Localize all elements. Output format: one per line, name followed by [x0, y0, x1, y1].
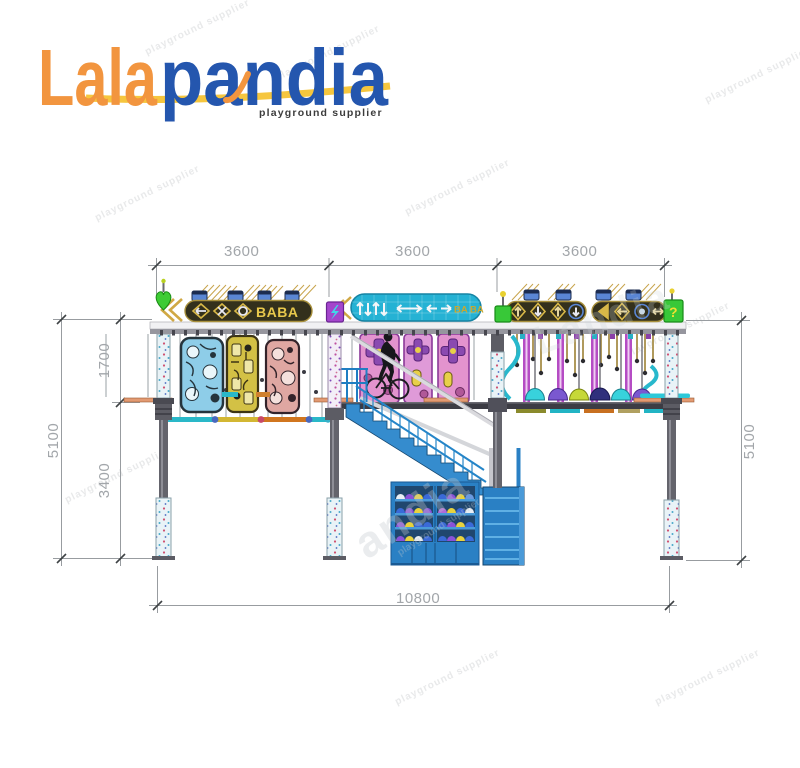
svg-text:BA BA: BA BA	[454, 305, 484, 316]
svg-text:BABA: BABA	[256, 304, 298, 320]
